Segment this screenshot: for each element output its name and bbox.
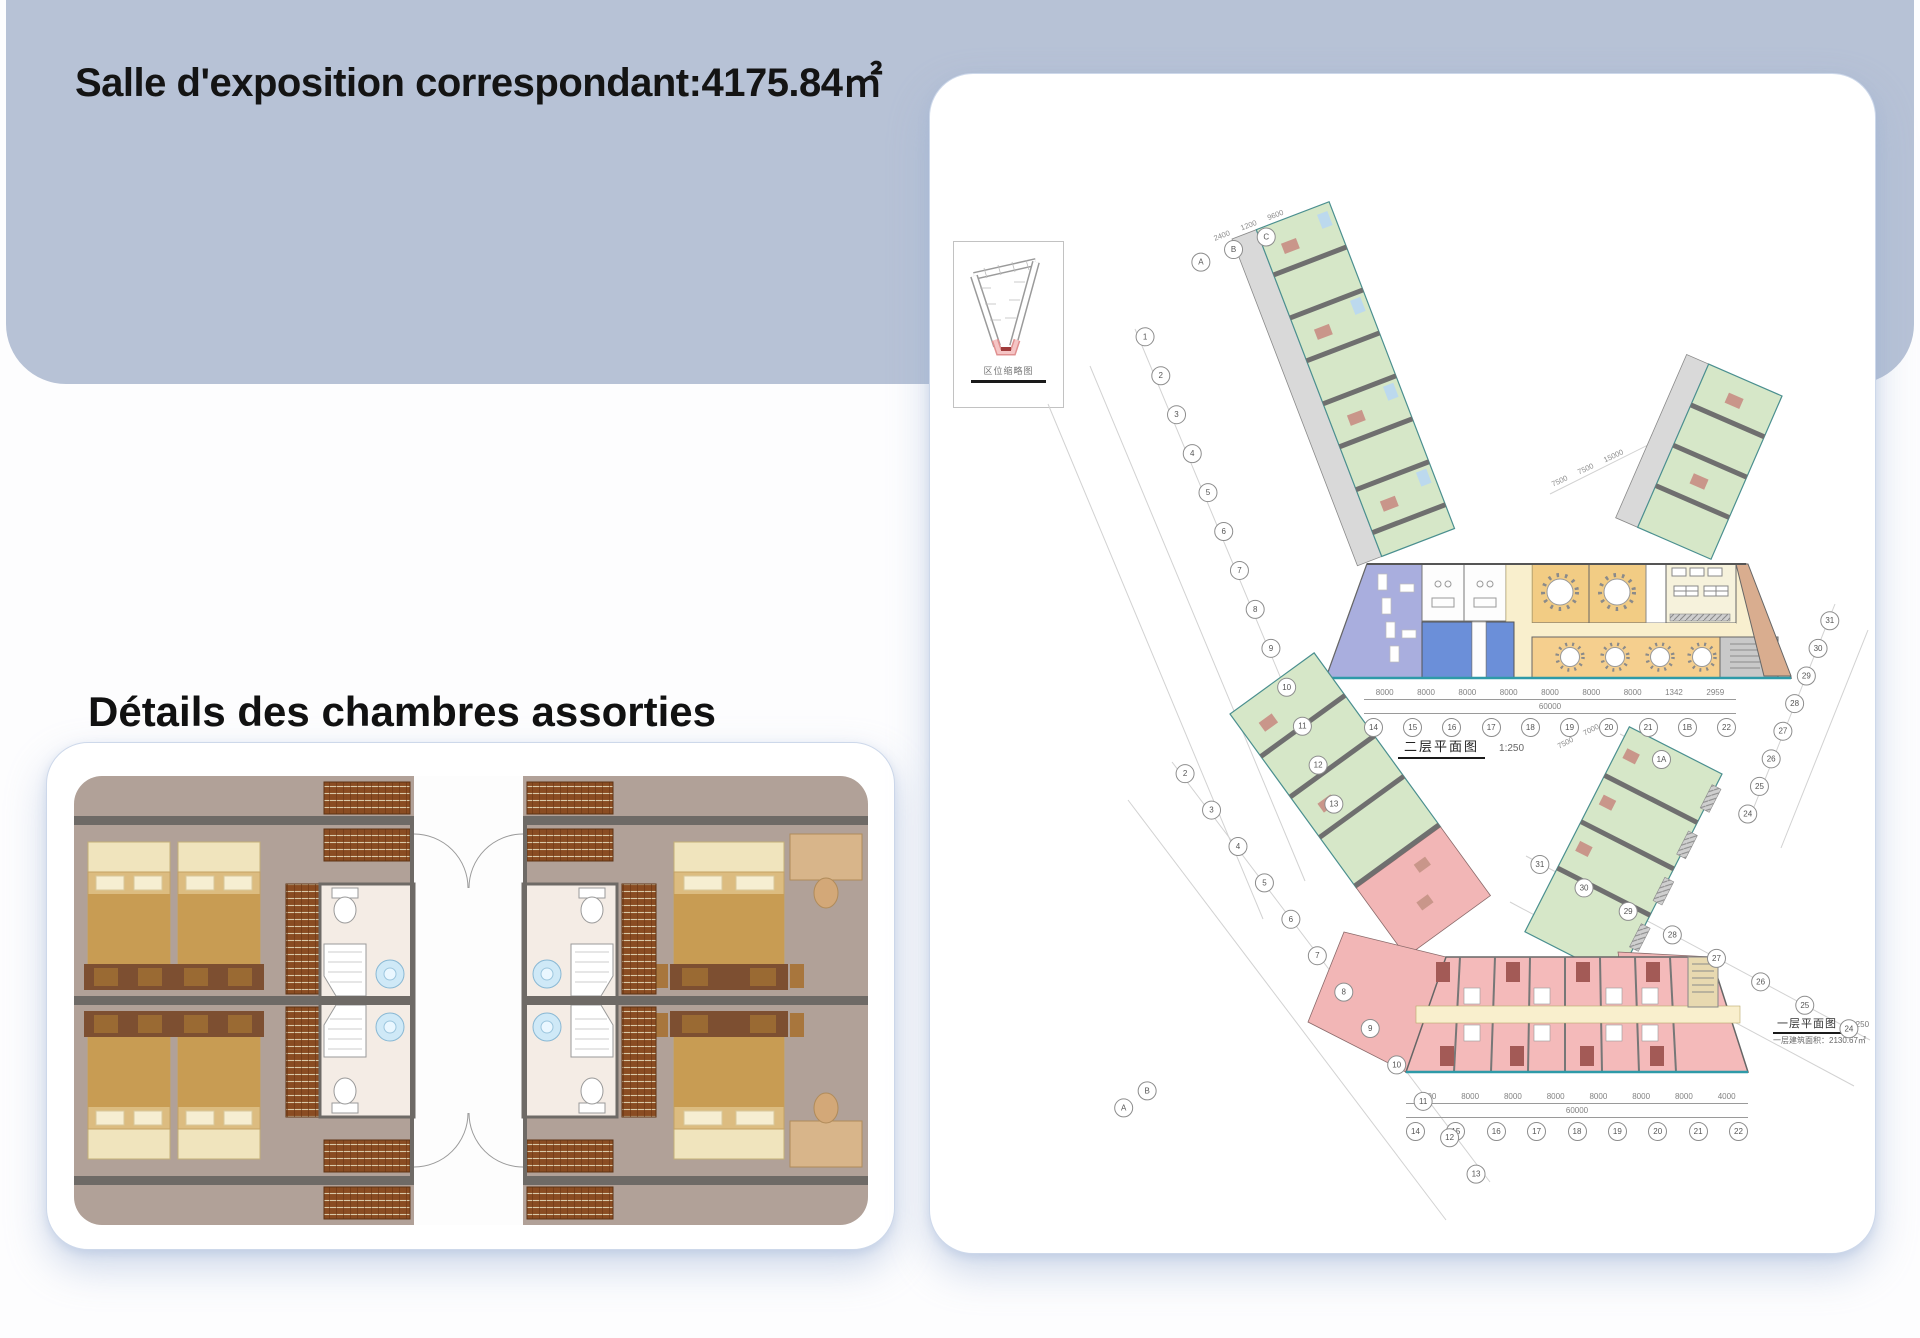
axis-bubble: 11 [1293,717,1312,736]
axis-bubble: 12 [1309,756,1328,775]
axis-bubble: 12 [1440,1128,1459,1147]
axis-bubble: 8 [1334,983,1353,1002]
room-floorplan-image [74,776,868,1225]
axis-bubble: 21 [1689,1122,1708,1141]
dim-label: 1342 [1653,688,1694,697]
axis-bubble: 4 [1183,444,1202,463]
dim-line [1364,713,1736,714]
axis-bubble: B [1138,1081,1157,1100]
floor2-caption-text: 二层平面图 [1398,739,1485,759]
dim-label: 8000 [1571,688,1612,697]
dim-label: 8000 [1449,1092,1492,1101]
axis-bubble: 11 [1414,1092,1433,1111]
dim-label: 8000 [1620,1092,1663,1101]
axis-bubble: 19 [1608,1122,1627,1141]
dim-label: 4000 [1705,1092,1748,1101]
dim-total: 60000 [1364,702,1736,711]
axis-bubble: 9 [1261,639,1280,658]
axis-bubble: 16 [1442,718,1461,737]
axis-bubble: 26 [1751,972,1770,991]
axis-bubble: B [1224,240,1243,259]
dim-label: 8000 [1405,688,1446,697]
dim-label: 2959 [1695,688,1736,697]
floor2-central-block [1326,564,1791,678]
axis-bubble: 15 [1403,718,1422,737]
axis-bubble: A [1191,253,1210,272]
floor2-dimension-row: 800080008000800080008000800013422959 600… [1364,688,1736,737]
axis-bubble: 13 [1467,1165,1486,1184]
dim-total: 60000 [1406,1106,1748,1115]
axis-bubble: 2 [1176,764,1195,783]
dim-line [1364,699,1736,700]
dim-label: 8000 [1529,688,1570,697]
floorplan-card: 区位缩略图 [929,73,1876,1254]
axis-bubble: 3 [1167,405,1186,424]
axis-bubble: 18 [1568,1122,1587,1141]
axis-bubble: 21 [1639,718,1658,737]
axis-bubble: 13 [1324,795,1343,814]
room-floorplan-drawing [74,776,868,1225]
axis-bubble: 28 [1663,925,1682,944]
axis-bubble: 24 [1738,805,1757,824]
axis-bubble: 30 [1575,878,1594,897]
axis-bubble: 10 [1277,678,1296,697]
axis-bubble: 29 [1797,666,1816,685]
axis-bubble: 9 [1361,1019,1380,1038]
axis-bubble: 16 [1487,1122,1506,1141]
axis-bubble: 10 [1387,1055,1406,1074]
axis-bubble: 22 [1729,1122,1748,1141]
slide-page: { "hero": { "title": "Salle d'exposition… [0,0,1920,1338]
axis-bubble: 29 [1619,902,1638,921]
axis-bubble: 28 [1785,694,1804,713]
axis-bubble: 14 [1406,1122,1425,1141]
axis-bubble: 30 [1809,639,1828,658]
floor2-left-wing [1232,202,1455,566]
axis-bubble: 7 [1230,561,1249,580]
axis-bubble: 6 [1214,522,1233,541]
axis-bubble: 4 [1228,837,1247,856]
dim-line [1406,1117,1748,1118]
page-title: Salle d'exposition correspondant:4175.84… [75,50,882,108]
axis-bubble: 18 [1521,718,1540,737]
axis-bubble: 3 [1202,801,1221,820]
dim-label: 8000 [1663,1092,1706,1101]
axis-bubble: 1B [1678,718,1697,737]
axis-bubble: 25 [1795,996,1814,1015]
axis-bubble: 31 [1530,855,1549,874]
axis-bubble: 20 [1599,718,1618,737]
dim-label: 8000 [1612,688,1653,697]
dim-label: 8000 [1492,1092,1535,1101]
axis-bubble: 5 [1255,873,1274,892]
dim-label: 8000 [1577,1092,1620,1101]
axis-bubble: 7 [1308,946,1327,965]
axis-bubble: 14 [1364,718,1383,737]
axis-bubble: 6 [1281,910,1300,929]
axis-bubble: 26 [1762,749,1781,768]
axis-bubble: 22 [1717,718,1736,737]
dim-label: 8000 [1488,688,1529,697]
dim-line [1406,1103,1748,1104]
dim-label: 8000 [1534,1092,1577,1101]
axis-bubble: A [1114,1098,1133,1117]
dim-label: 8000 [1364,688,1405,697]
floor2-plan [1232,202,1791,678]
axis-bubble: 25 [1750,777,1769,796]
axis-bubble: 27 [1707,949,1726,968]
axis-bubble: 1 [1136,327,1155,346]
room-detail-card [46,742,895,1250]
axis-bubble: 31 [1820,611,1839,630]
axis-bubble: 24 [1839,1019,1858,1038]
axis-bubble: 8 [1246,600,1265,619]
floor2-right-wing [1616,355,1782,560]
axis-bubble: 17 [1527,1122,1546,1141]
floor1-central-block [1406,957,1748,1072]
rooms-section-heading: Détails des chambres assorties [88,688,716,736]
floor2-scale: 1:250 [1499,743,1524,754]
axis-bubble: 20 [1648,1122,1667,1141]
axis-bubble: C [1257,228,1276,247]
axis-bubble: 27 [1773,722,1792,741]
axis-bubble-corner: 1A [1652,750,1671,769]
axis-bubble: 2 [1151,366,1170,385]
axis-bubble: 5 [1198,483,1217,502]
dim-label: 8000 [1447,688,1488,697]
axis-bubble: 17 [1482,718,1501,737]
floor2-caption: 二层平面图1:250 [1398,736,1524,755]
